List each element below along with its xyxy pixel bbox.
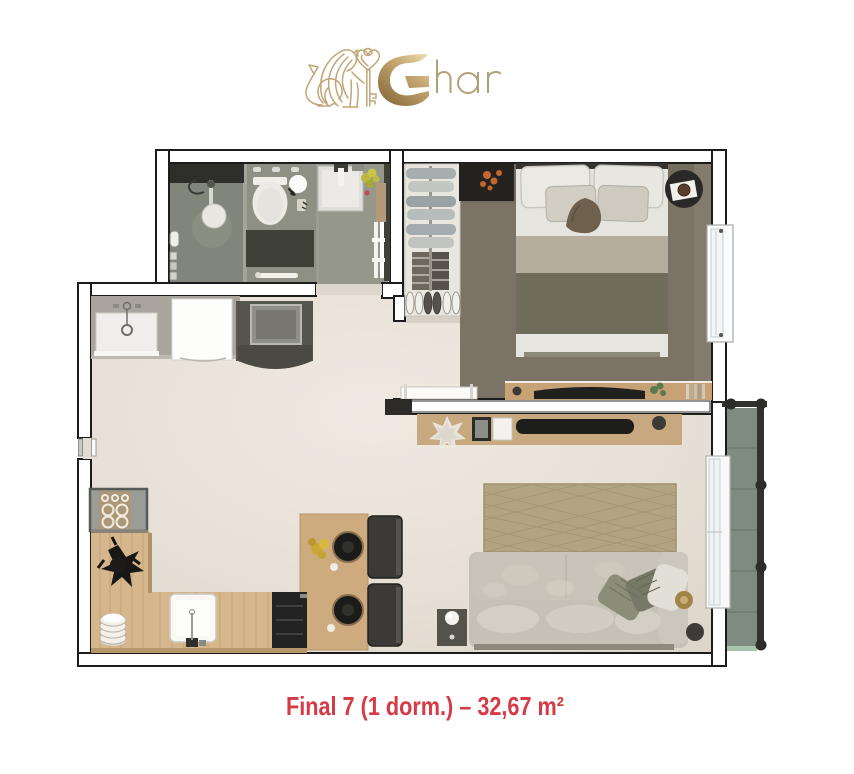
svg-text:Final 7 (1 dorm.) – 32,67 m²: Final 7 (1 dorm.) – 32,67 m²: [286, 691, 564, 721]
